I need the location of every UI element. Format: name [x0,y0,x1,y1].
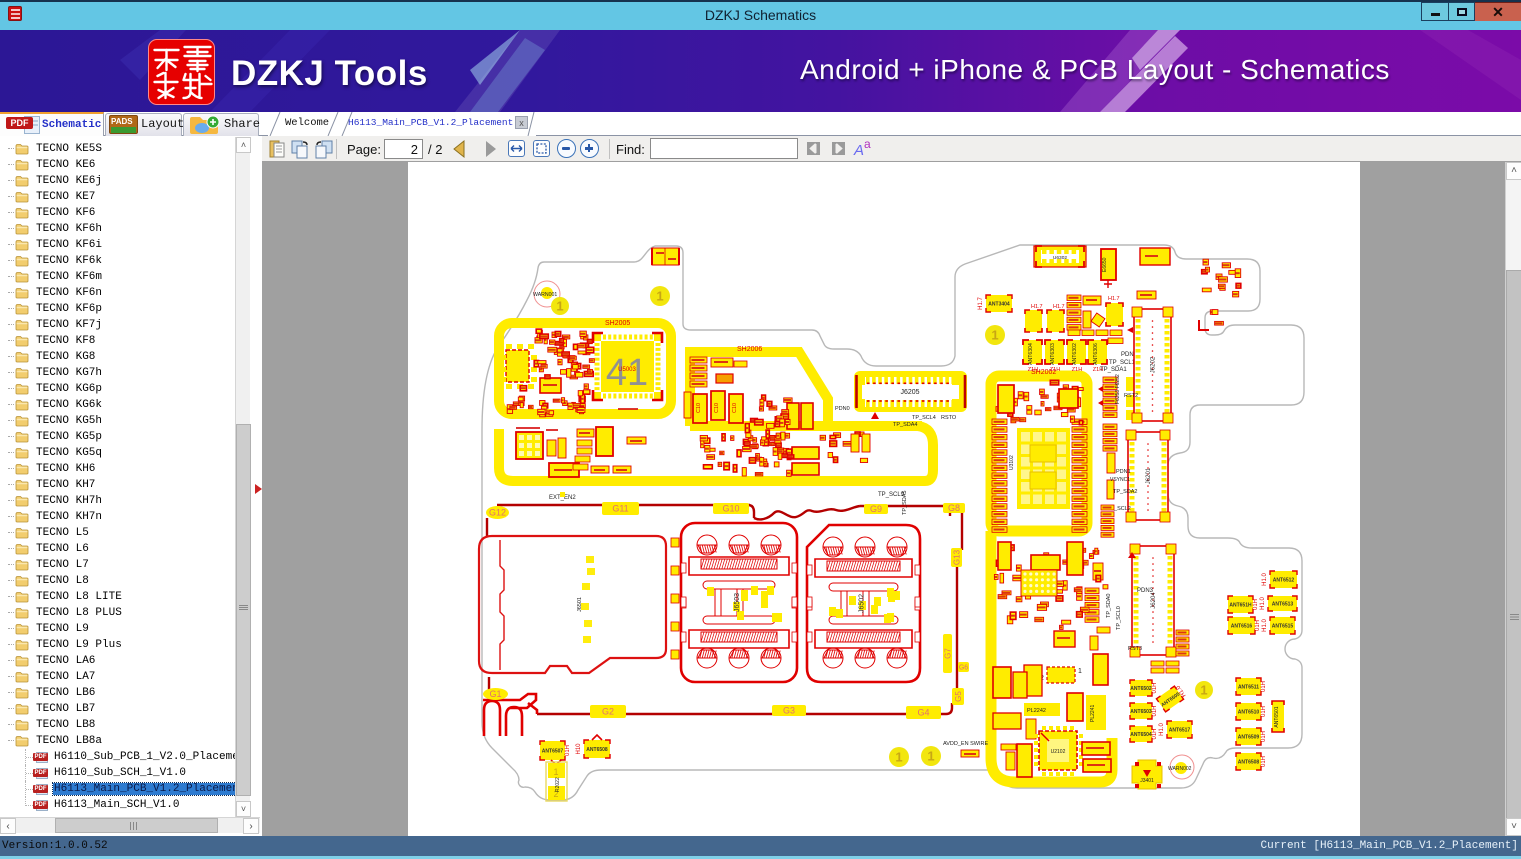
svg-text:01H: 01H [1261,756,1267,767]
svg-text:01H: 01H [1152,682,1158,693]
svg-text:U5003: U5003 [618,367,636,373]
svg-text:J3401: J3401 [1140,778,1154,784]
svg-text:H1.0: H1.0 [1262,619,1268,632]
svg-text:ANT3404: ANT3404 [988,302,1010,308]
svg-text:G9: G9 [870,504,882,514]
svg-text:ANT6507: ANT6507 [542,749,564,755]
svg-text:C10: C10 [732,403,738,413]
svg-text:ANT651H: ANT651H [1229,603,1252,609]
svg-text:H1.7: H1.7 [978,297,984,310]
svg-text:U2102: U2102 [1051,749,1066,755]
svg-text:ANT6515: ANT6515 [1272,624,1294,630]
svg-text:WARN001: WARN001 [533,292,557,298]
svg-text:C10: C10 [714,403,720,413]
svg-text:RSTO: RSTO [941,415,957,421]
svg-text:ANT6303: ANT6303 [1050,343,1056,365]
svg-text:ANT6501: ANT6501 [1274,706,1280,727]
svg-text:ANT6503: ANT6503 [1130,709,1152,715]
svg-text:AVDD_EN SWIRE: AVDD_EN SWIRE [943,741,988,747]
svg-text:TP_SCL0: TP_SCL0 [1116,606,1122,630]
svg-text:H1.0: H1.0 [1262,573,1268,586]
svg-text:01H: 01H [565,745,571,756]
svg-text:01H: 01H [1255,620,1261,631]
svg-text:ANT6302: ANT6302 [1072,343,1078,365]
svg-text:G12: G12 [489,508,506,518]
svg-text:G4: G4 [917,708,929,718]
svg-text:G13: G13 [952,549,961,565]
svg-text:J6503: J6503 [734,593,741,612]
svg-text:H10: H10 [576,743,582,755]
svg-text:TP_SDA1: TP_SDA1 [1100,367,1127,373]
svg-text:G7: G7 [943,648,952,659]
svg-text:J6502: J6502 [859,594,866,613]
svg-text:PDN3: PDN3 [1137,588,1154,594]
svg-text:SH2005: SH2005 [605,320,630,327]
svg-text:G5: G5 [954,691,963,702]
svg-text:ANT6502: ANT6502 [1130,686,1152,692]
svg-text:R2022: R2022 [555,777,561,792]
svg-text:1: 1 [927,749,934,764]
svg-text:G11: G11 [612,504,628,514]
svg-text:01H: 01H [1152,728,1158,739]
svg-text:PDN1: PDN1 [1116,469,1131,475]
svg-text:1: 1 [895,750,902,765]
svg-text:H1.7: H1.7 [1053,304,1065,310]
svg-text:G3: G3 [783,706,795,716]
svg-text:RST3: RST3 [1128,646,1142,652]
svg-text:H1.7: H1.7 [1031,304,1043,310]
svg-text:ANT6304: ANT6304 [1028,343,1034,365]
svg-text:1: 1 [556,299,563,314]
svg-text:TP_SCL9: TP_SCL9 [878,492,905,498]
svg-text:U6302: U6302 [1053,255,1067,261]
svg-text:1: 1 [553,767,558,777]
svg-text:TP_SCL1: TP_SCL1 [1109,360,1136,366]
svg-text:C10: C10 [696,403,702,413]
svg-text:Z1H: Z1H [1028,367,1038,373]
svg-text:H1.0: H1.0 [1260,597,1266,610]
svg-text:1: 1 [1200,683,1207,698]
svg-text:J6202: J6202 [1151,356,1157,373]
svg-text:Z1H: Z1H [1050,367,1060,373]
svg-text:PL2241: PL2241 [1090,705,1096,722]
svg-text:H1.7: H1.7 [1108,296,1120,302]
svg-text:G2: G2 [602,707,614,717]
svg-text:G10: G10 [722,504,739,514]
svg-text:TP_SCL4: TP_SCL4 [912,415,936,421]
svg-text:01H: 01H [1261,731,1267,742]
svg-text:1: 1 [991,328,998,343]
svg-text:ANT6504: ANT6504 [1130,732,1152,738]
svg-text:G1: G1 [489,689,501,699]
svg-text:TP_SDA5: TP_SDA5 [902,491,908,515]
svg-text:ANT6513: ANT6513 [1272,602,1294,608]
svg-text:J6201: J6201 [1146,467,1152,484]
svg-text:41: 41 [606,352,648,394]
svg-text:ANT6508: ANT6508 [1238,760,1260,766]
svg-text:01H: 01H [1253,599,1259,610]
svg-text:RST2: RST2 [1124,393,1138,399]
svg-text:PL2242: PL2242 [1027,708,1046,714]
svg-text:H1.0: H1.0 [1159,723,1165,736]
svg-text:ANT6511: ANT6511 [1238,685,1259,691]
svg-text:Z1H: Z1H [1072,367,1082,373]
svg-text:PDN0: PDN0 [835,406,850,412]
svg-text:01H: 01H [1261,706,1267,717]
svg-text:ANT6517: ANT6517 [1169,728,1191,734]
svg-text:SH2006: SH2006 [737,346,762,353]
svg-text:ANT6512: ANT6512 [1273,578,1295,584]
svg-text:TP_SDA0: TP_SDA0 [1106,594,1112,618]
svg-text:TP_SDA2: TP_SDA2 [1113,489,1137,495]
svg-text:ANT6306: ANT6306 [1093,343,1099,365]
svg-text:F6253 F6252: F6253 F6252 [1115,374,1121,404]
svg-text:1: 1 [1078,668,1082,675]
svg-text:TP_SDA4: TP_SDA4 [893,422,917,428]
svg-text:1: 1 [656,289,663,304]
svg-text:G6: G6 [959,664,968,671]
svg-text:ANT6510: ANT6510 [1238,710,1260,716]
svg-text:ANT6516: ANT6516 [1231,624,1253,630]
svg-text:WARN002: WARN002 [1168,766,1192,772]
svg-text:01H: 01H [1152,705,1158,716]
svg-text:G8: G8 [948,503,960,513]
svg-text:U3102: U3102 [1009,455,1015,470]
svg-text:01H: 01H [1261,681,1267,692]
svg-text:E6650: E6650 [1102,257,1108,272]
svg-text:VSYNC1: VSYNC1 [1110,477,1130,483]
svg-text:ANT6508: ANT6508 [586,747,608,753]
svg-text:J6205: J6205 [900,389,919,396]
svg-text:J6204: J6204 [1151,592,1157,609]
svg-text:ANT6509: ANT6509 [1238,735,1260,741]
